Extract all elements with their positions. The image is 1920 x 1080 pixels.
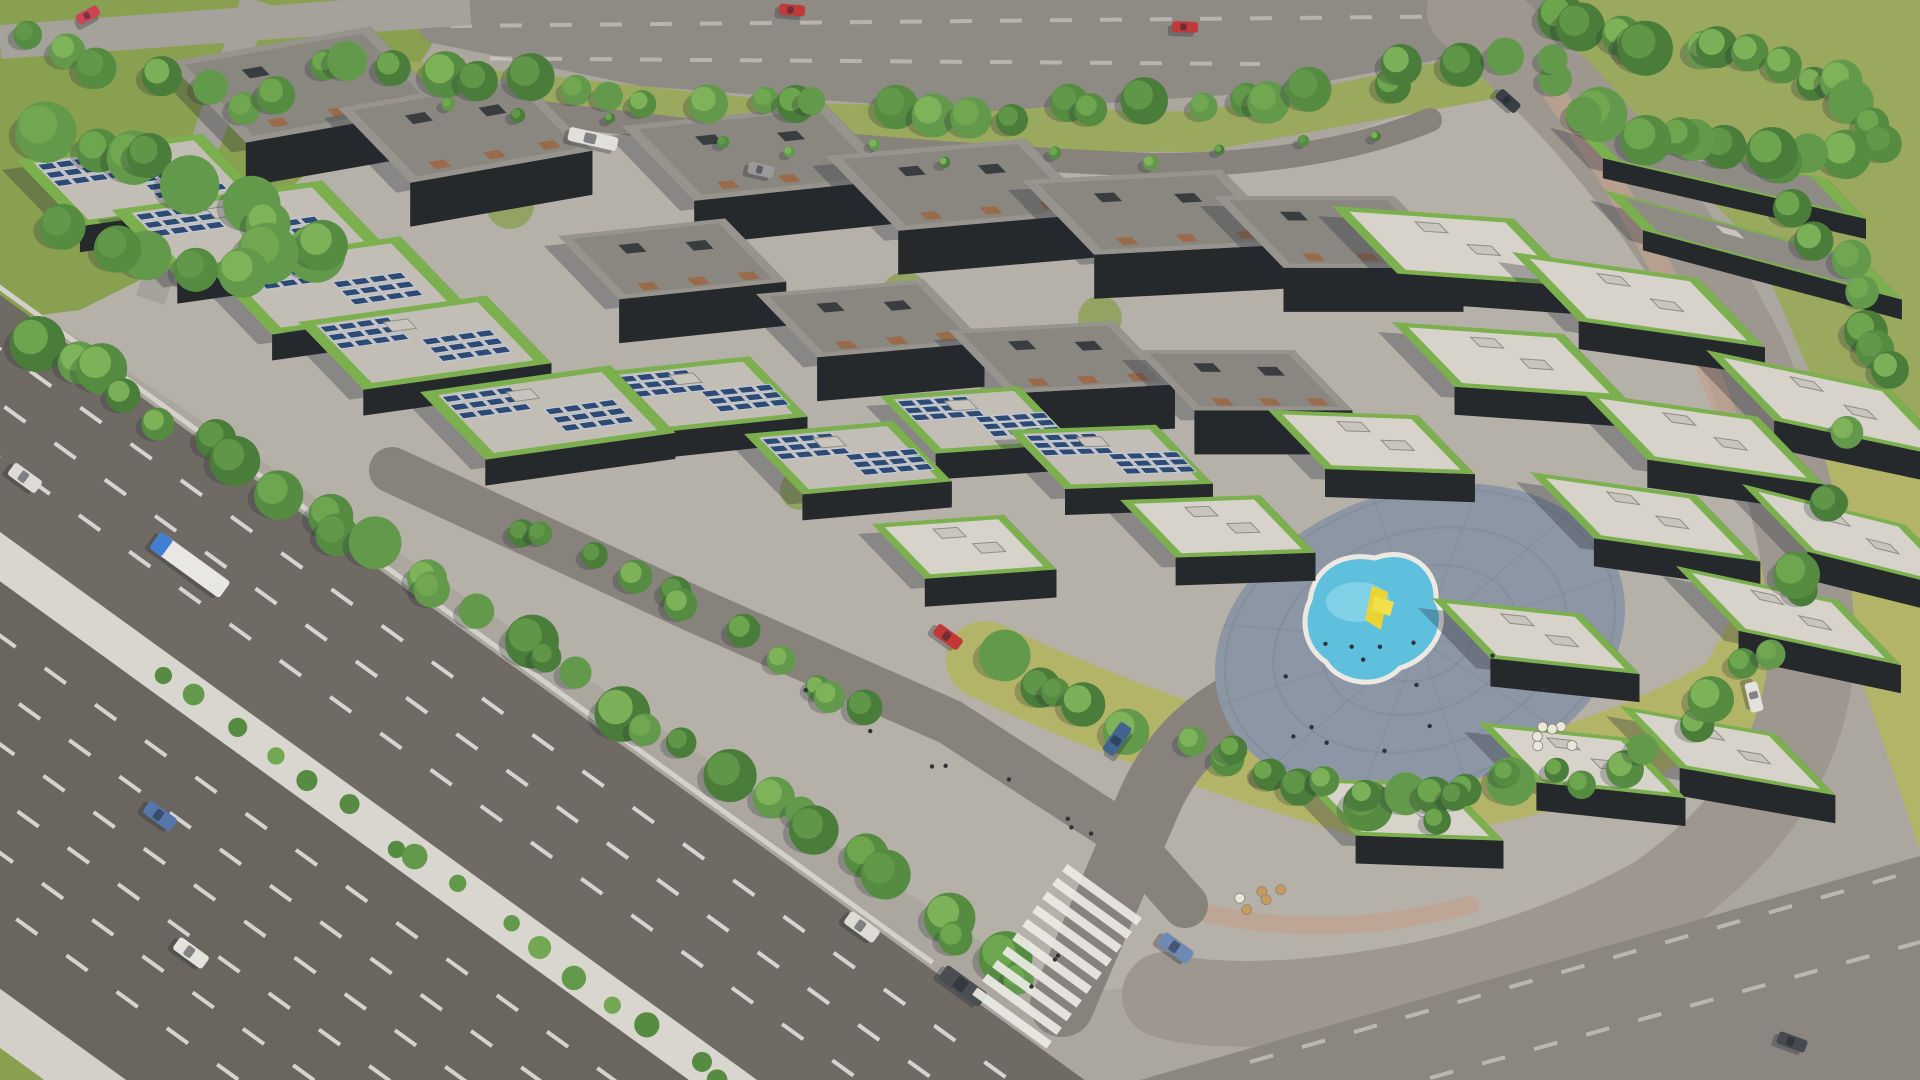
- tree-highlight: [1758, 641, 1776, 659]
- tree-highlight: [1495, 762, 1512, 779]
- tree-highlight: [530, 523, 545, 538]
- tree-highlight: [816, 683, 836, 703]
- tree-highlight: [1076, 95, 1096, 115]
- tree-highlight: [230, 94, 250, 114]
- pedestrian: [1350, 644, 1354, 648]
- cafe-umbrella: [1547, 724, 1557, 734]
- tree-highlight: [756, 779, 782, 805]
- tree-highlight: [563, 77, 582, 96]
- tree-highlight: [13, 320, 48, 355]
- tree-highlight: [940, 923, 961, 944]
- tree-highlight: [130, 136, 158, 164]
- tree-highlight: [754, 88, 771, 105]
- tree-highlight: [583, 544, 599, 560]
- pedestrian: [1007, 777, 1011, 781]
- tree-highlight: [257, 473, 288, 504]
- tree-highlight: [1831, 82, 1859, 110]
- tree-highlight: [352, 520, 385, 553]
- tree-highlight: [1425, 809, 1442, 826]
- tree-highlight: [707, 752, 740, 785]
- tree-highlight: [416, 573, 439, 596]
- cafe-umbrella: [1533, 741, 1543, 751]
- tree-highlight: [1049, 147, 1057, 155]
- median-bush: [402, 844, 428, 870]
- tree-highlight: [605, 113, 612, 120]
- tree-highlight: [78, 50, 104, 76]
- tree-highlight: [953, 100, 979, 126]
- building-facade: [1176, 553, 1316, 586]
- cafe-umbrella: [1532, 731, 1542, 741]
- aerial-render-viewport: [0, 0, 1920, 1080]
- tree-highlight: [769, 647, 787, 665]
- tree-highlight: [97, 228, 126, 257]
- tree-highlight: [668, 729, 687, 748]
- vehicle-windshield: [1180, 23, 1186, 30]
- tree-highlight: [1489, 40, 1512, 63]
- tree-highlight: [213, 439, 244, 470]
- tree-highlight: [318, 516, 344, 542]
- tree-highlight: [1775, 191, 1799, 215]
- vehicle-car-red-top-2: [1168, 21, 1199, 37]
- tree-highlight: [1064, 685, 1092, 713]
- median-bush: [183, 684, 205, 706]
- tree-highlight: [621, 562, 642, 583]
- tree-highlight: [1699, 29, 1725, 55]
- tree-highlight: [1144, 156, 1154, 166]
- tree-highlight: [877, 88, 905, 116]
- tree-highlight: [598, 690, 633, 725]
- tree-highlight: [259, 79, 283, 103]
- tree-highlight: [15, 23, 33, 41]
- pedestrian: [1309, 725, 1313, 729]
- building-facade: [1325, 469, 1475, 502]
- tree-highlight: [1767, 49, 1790, 72]
- tree-highlight: [1624, 118, 1655, 149]
- tree-highlight: [1124, 80, 1153, 109]
- tree-highlight: [1730, 650, 1749, 669]
- cafe-umbrella: [1235, 893, 1245, 903]
- tree-highlight: [799, 89, 816, 106]
- pedestrian: [1361, 657, 1365, 661]
- tree-highlight: [1311, 768, 1329, 786]
- tree-highlight: [1691, 679, 1720, 708]
- tree-highlight: [1812, 487, 1835, 510]
- tree-highlight: [1191, 95, 1208, 112]
- pedestrian: [943, 764, 947, 768]
- pedestrian: [1089, 831, 1093, 835]
- tree-highlight: [1254, 761, 1271, 778]
- tree-highlight: [1825, 133, 1856, 164]
- tree-highlight: [785, 147, 792, 154]
- tree-highlight: [1179, 728, 1198, 747]
- tree-highlight: [1733, 36, 1756, 59]
- tree-highlight: [511, 109, 520, 118]
- tree-highlight: [1443, 46, 1470, 73]
- tree-highlight: [1833, 418, 1853, 438]
- tree-highlight: [1621, 24, 1655, 58]
- tree-highlight: [631, 716, 651, 736]
- tree-highlight: [460, 64, 485, 89]
- tree-highlight: [177, 251, 204, 278]
- tree-highlight: [1289, 70, 1317, 98]
- cafe-umbrella: [1261, 895, 1271, 905]
- tree-highlight: [1559, 6, 1589, 36]
- tree-highlight: [1629, 736, 1648, 755]
- tree-highlight: [1352, 782, 1371, 801]
- tree-highlight: [666, 590, 687, 611]
- tree-highlight: [596, 84, 614, 102]
- pedestrian: [1324, 741, 1328, 745]
- tree-highlight: [864, 853, 895, 884]
- tree-highlight: [1776, 554, 1805, 583]
- tree-highlight: [1858, 333, 1882, 357]
- median-bush: [528, 936, 551, 959]
- tree-highlight: [377, 52, 399, 74]
- tree-highlight: [1043, 679, 1061, 697]
- tree-highlight: [52, 36, 74, 58]
- tree-highlight: [1371, 132, 1377, 138]
- tree-highlight: [330, 44, 355, 69]
- pedestrian: [1291, 734, 1295, 738]
- median-bush: [562, 966, 586, 990]
- tree-highlight: [1298, 136, 1305, 143]
- tree-highlight: [461, 596, 483, 618]
- tree-highlight: [1874, 353, 1897, 376]
- pedestrian: [1056, 954, 1060, 958]
- tree-highlight: [221, 251, 252, 282]
- tree-highlight: [1546, 759, 1561, 774]
- median-bush: [449, 875, 466, 892]
- tree-highlight: [43, 207, 72, 236]
- cafe-umbrella: [1242, 905, 1252, 915]
- median-bush: [604, 997, 621, 1014]
- pedestrian: [1066, 817, 1070, 821]
- tree-highlight: [143, 410, 163, 430]
- median-bush: [503, 915, 519, 931]
- cafe-umbrella: [1538, 722, 1548, 732]
- tree-highlight: [1797, 224, 1821, 248]
- median-bush: [692, 1052, 712, 1072]
- pedestrian: [1378, 645, 1382, 649]
- tree-highlight: [792, 808, 823, 839]
- tree-highlight: [79, 346, 111, 378]
- tree-highlight: [108, 381, 129, 402]
- tree-highlight: [849, 692, 871, 714]
- pedestrian: [1414, 683, 1418, 687]
- pedestrian: [868, 729, 872, 733]
- tree-highlight: [510, 56, 540, 86]
- tree-highlight: [1250, 84, 1276, 110]
- tree-highlight: [998, 106, 1018, 126]
- tree-highlight: [1750, 130, 1782, 162]
- tree-highlight: [1540, 46, 1559, 65]
- median-bush: [296, 770, 317, 791]
- tree-highlight: [914, 96, 941, 123]
- median-bush: [340, 794, 360, 814]
- median-bush: [228, 718, 247, 737]
- tree-highlight: [442, 98, 450, 106]
- tree-highlight: [1220, 737, 1238, 755]
- tree-highlight: [144, 59, 169, 84]
- vehicle-windshield: [787, 6, 794, 14]
- cafe-umbrella: [1567, 741, 1577, 751]
- tree-highlight: [630, 92, 647, 109]
- tree-highlight: [939, 157, 946, 164]
- tree-highlight: [729, 616, 750, 637]
- pedestrian: [930, 764, 934, 768]
- pedestrian: [1427, 724, 1431, 728]
- tree-highlight: [869, 139, 876, 146]
- cafe-umbrella: [1276, 885, 1286, 895]
- building-facade: [1356, 836, 1504, 869]
- tree-highlight: [1283, 771, 1306, 794]
- pedestrian: [1029, 984, 1033, 988]
- pedestrian: [1411, 641, 1415, 645]
- tree-highlight: [1383, 47, 1409, 73]
- tree-highlight: [195, 72, 217, 94]
- tree-highlight: [164, 159, 201, 196]
- pedestrian: [1069, 825, 1073, 829]
- pedestrian: [1541, 687, 1545, 691]
- pedestrian: [1490, 654, 1494, 658]
- pedestrian: [804, 688, 808, 692]
- tree-highlight: [1834, 242, 1859, 267]
- tree-highlight: [982, 633, 1014, 665]
- tree-highlight: [1847, 278, 1868, 299]
- pedestrian: [1382, 749, 1386, 753]
- tree-highlight: [561, 659, 581, 679]
- median-bush: [155, 667, 172, 684]
- median-bush: [634, 1012, 659, 1037]
- pedestrian: [1053, 957, 1057, 961]
- pedestrian: [1323, 642, 1327, 646]
- tree-highlight: [691, 87, 715, 111]
- tree-highlight: [1215, 145, 1222, 152]
- tree-highlight: [533, 644, 552, 663]
- tree-highlight: [718, 137, 726, 145]
- pedestrian: [1284, 674, 1288, 678]
- tree-highlight: [1569, 772, 1587, 790]
- tree-highlight: [1442, 784, 1460, 802]
- tree-highlight: [19, 105, 57, 143]
- scene-svg: [0, 0, 1920, 1080]
- tree-highlight: [425, 54, 454, 83]
- median-bush: [267, 747, 284, 764]
- tree-highlight: [1568, 99, 1590, 121]
- tree-highlight: [300, 223, 332, 255]
